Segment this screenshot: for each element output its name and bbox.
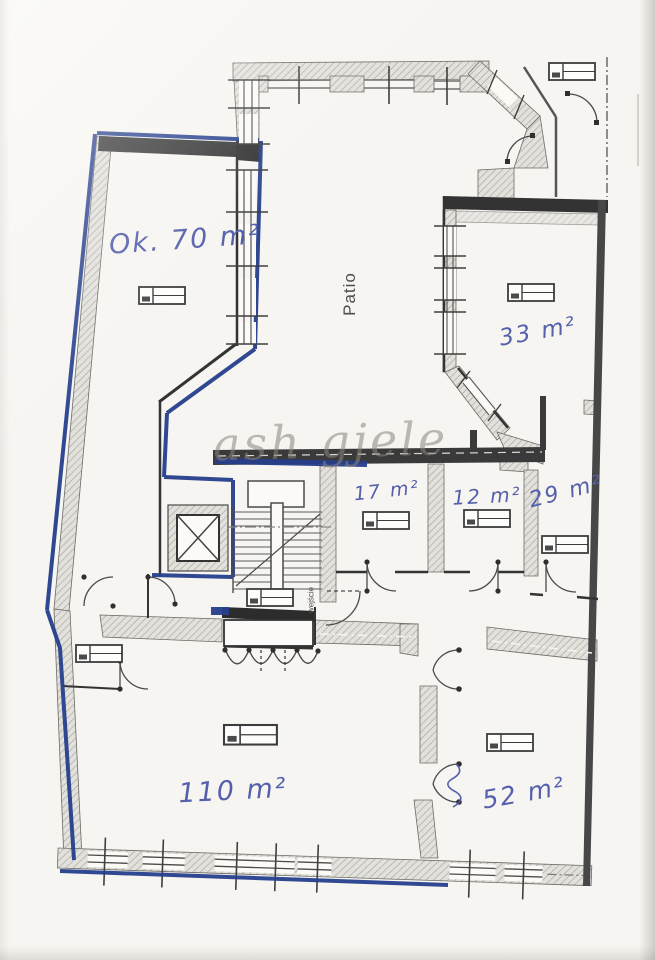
radiator-icon (542, 536, 588, 553)
radiator-icon (247, 589, 293, 606)
radiator-icon (487, 734, 533, 751)
radiator-icon (363, 512, 409, 529)
wall-edge-lines (62, 67, 638, 689)
bottom-exterior-wall (57, 836, 592, 902)
elevator-shaft-icon (168, 505, 228, 571)
radiator-icon (76, 645, 122, 662)
radiator-icon (549, 63, 595, 80)
floor-plan-drawing (0, 0, 655, 960)
radiator-icon (508, 284, 554, 301)
floor-plan-page: ash gjele Patio wejście Ok. 70 m² 33 m² … (0, 0, 655, 960)
window-symbol (226, 66, 524, 421)
radiator-icon (224, 725, 277, 745)
entrance-doors (222, 620, 320, 672)
radiator-icon (464, 510, 510, 527)
staircase-icon (226, 481, 331, 593)
window-symbol (87, 837, 543, 900)
radiator-icon (139, 287, 185, 304)
